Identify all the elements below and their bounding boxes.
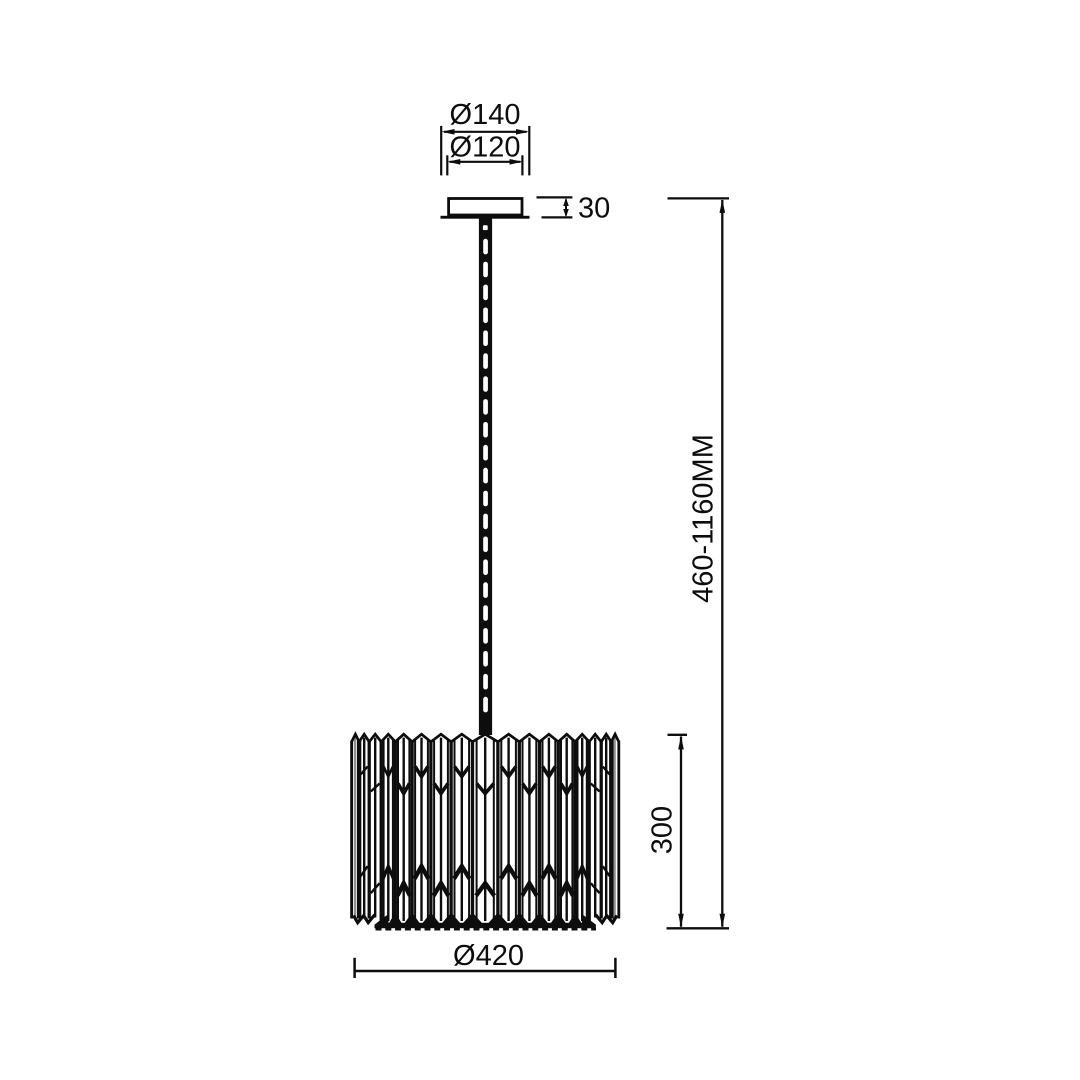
svg-text:Ø140: Ø140 bbox=[450, 99, 521, 131]
svg-text:Ø420: Ø420 bbox=[453, 940, 524, 972]
svg-text:30: 30 bbox=[578, 192, 610, 224]
svg-text:300: 300 bbox=[647, 806, 679, 854]
svg-text:460-1160MM: 460-1160MM bbox=[688, 434, 720, 603]
svg-text:Ø120: Ø120 bbox=[450, 132, 521, 164]
